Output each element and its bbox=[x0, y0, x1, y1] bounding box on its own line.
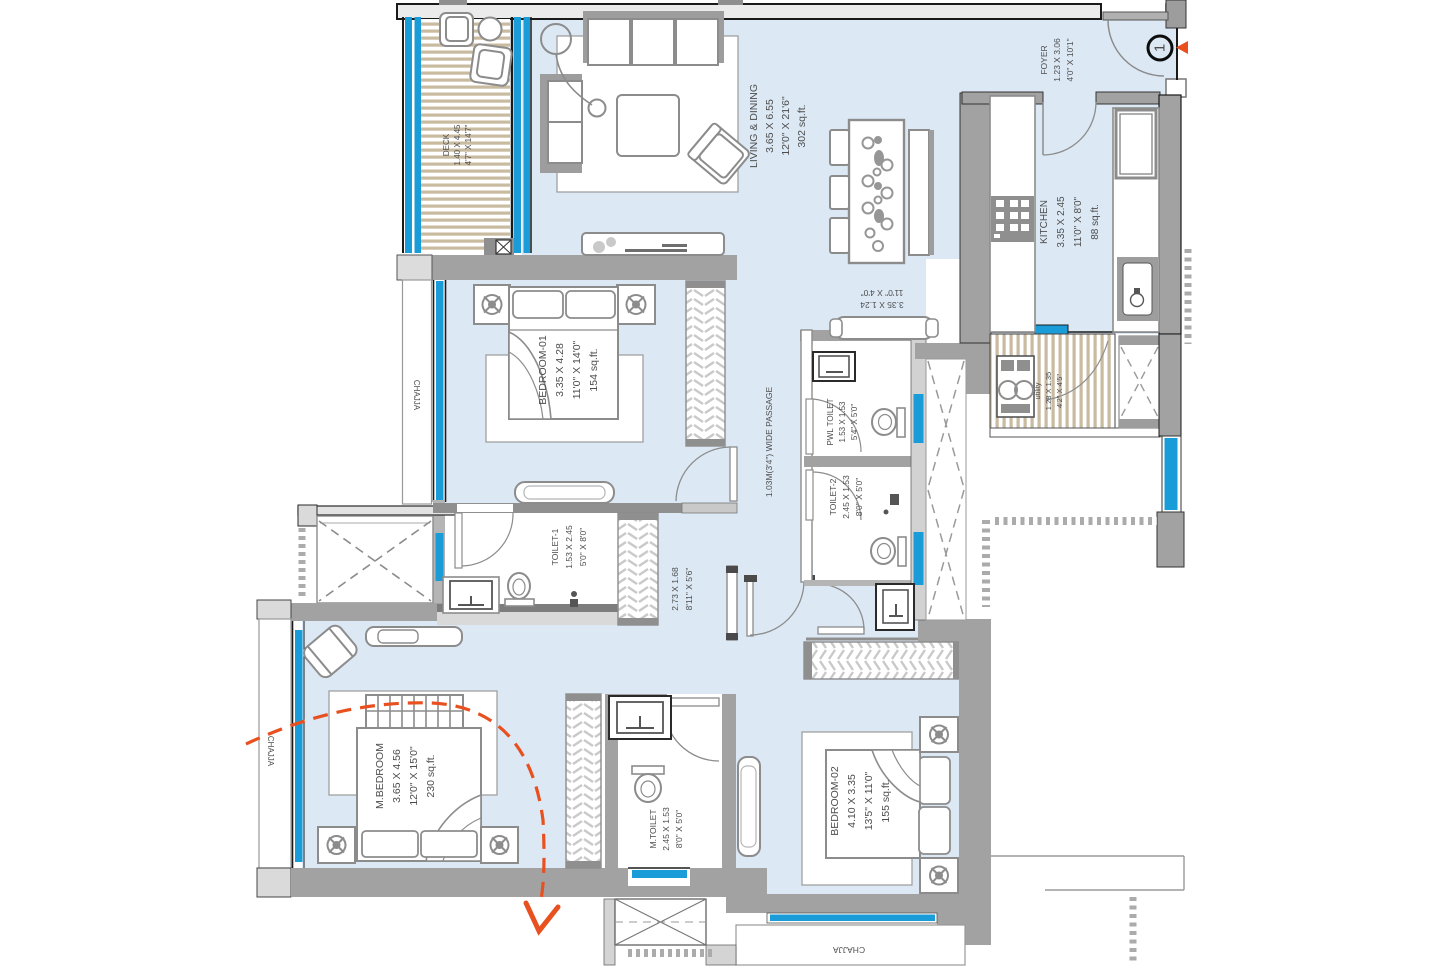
svg-text:4'2" X 4'5": 4'2" X 4'5" bbox=[1055, 374, 1064, 408]
svg-text:DECK: DECK bbox=[442, 133, 451, 156]
svg-text:302 sq.ft.: 302 sq.ft. bbox=[796, 104, 808, 147]
svg-text:2.45 X 1.53: 2.45 X 1.53 bbox=[661, 807, 671, 851]
svg-text:BEDROOM-01: BEDROOM-01 bbox=[537, 335, 549, 405]
svg-text:1: 1 bbox=[1152, 44, 1169, 52]
svg-text:1.53 X 2.45: 1.53 X 2.45 bbox=[564, 525, 574, 569]
svg-text:230 sq.ft.: 230 sq.ft. bbox=[425, 754, 437, 797]
svg-text:2.73 X 1.68: 2.73 X 1.68 bbox=[670, 567, 680, 611]
svg-text:11'0" X 8'0": 11'0" X 8'0" bbox=[1073, 196, 1084, 247]
svg-text:CHAJJA: CHAJJA bbox=[833, 945, 865, 955]
svg-text:3.65 X 6.55: 3.65 X 6.55 bbox=[764, 99, 776, 153]
svg-text:PWL TOILET: PWL TOILET bbox=[826, 398, 835, 445]
svg-text:11'0" X 4'0": 11'0" X 4'0" bbox=[861, 288, 904, 298]
svg-text:154 sq.ft.: 154 sq.ft. bbox=[588, 348, 600, 391]
svg-text:1.03M(3'4") WIDE PASSAGE: 1.03M(3'4") WIDE PASSAGE bbox=[764, 387, 774, 498]
svg-text:4.10 X 3.35: 4.10 X 3.35 bbox=[846, 774, 858, 828]
svg-text:M.TOILET: M.TOILET bbox=[648, 809, 658, 848]
svg-text:4'7" X 14'7": 4'7" X 14'7" bbox=[464, 124, 473, 165]
svg-text:3.65 X 4.56: 3.65 X 4.56 bbox=[391, 749, 403, 803]
svg-text:CHAJJA: CHAJJA bbox=[412, 380, 421, 411]
svg-text:utility: utility bbox=[1033, 382, 1042, 399]
svg-text:M.BEDROOM: M.BEDROOM bbox=[374, 743, 386, 809]
svg-text:1.28 X 1.35: 1.28 X 1.35 bbox=[1044, 372, 1053, 410]
svg-text:3.35 X 2.45: 3.35 X 2.45 bbox=[1056, 196, 1067, 248]
svg-text:5'4" X 5'0": 5'4" X 5'0" bbox=[850, 404, 859, 440]
svg-text:3.35 X 1.24: 3.35 X 1.24 bbox=[860, 300, 904, 310]
svg-text:KITCHEN: KITCHEN bbox=[1039, 200, 1050, 244]
svg-text:8'11" X 5'6": 8'11" X 5'6" bbox=[684, 568, 694, 611]
svg-text:13'5" X 11'0": 13'5" X 11'0" bbox=[863, 771, 875, 830]
svg-text:11'0" X 14'0": 11'0" X 14'0" bbox=[571, 340, 583, 399]
svg-text:12'0" X 21'6": 12'0" X 21'6" bbox=[780, 96, 792, 156]
svg-text:5'0" X 8'0": 5'0" X 8'0" bbox=[578, 528, 588, 567]
svg-text:TOILET-2: TOILET-2 bbox=[828, 478, 838, 515]
svg-text:2.45 X 1.53: 2.45 X 1.53 bbox=[841, 475, 851, 519]
svg-text:BEDROOM-02: BEDROOM-02 bbox=[829, 766, 841, 836]
svg-text:4'0" X 10'1": 4'0" X 10'1" bbox=[1065, 38, 1075, 81]
svg-text:CHAJJA: CHAJJA bbox=[266, 736, 275, 767]
svg-text:3.35 X 4.28: 3.35 X 4.28 bbox=[554, 343, 566, 397]
svg-text:1.23 X 3.06: 1.23 X 3.06 bbox=[1052, 38, 1062, 82]
svg-text:LIVING & DINING: LIVING & DINING bbox=[748, 84, 760, 168]
svg-text:12'0" X 15'0": 12'0" X 15'0" bbox=[408, 746, 420, 806]
svg-text:TOILET-1: TOILET-1 bbox=[550, 528, 560, 565]
svg-text:8'0" X 5'0": 8'0" X 5'0" bbox=[674, 810, 684, 849]
svg-text:1.53 X 1.53: 1.53 X 1.53 bbox=[838, 401, 847, 442]
svg-text:155 sq.ft.: 155 sq.ft. bbox=[880, 779, 892, 822]
svg-text:1.40 X 4.45: 1.40 X 4.45 bbox=[453, 124, 462, 165]
svg-text:8'0" X 5'0": 8'0" X 5'0" bbox=[854, 478, 864, 517]
svg-text:FOYER: FOYER bbox=[1039, 45, 1049, 74]
svg-text:88 sq.ft.: 88 sq.ft. bbox=[1090, 204, 1101, 240]
